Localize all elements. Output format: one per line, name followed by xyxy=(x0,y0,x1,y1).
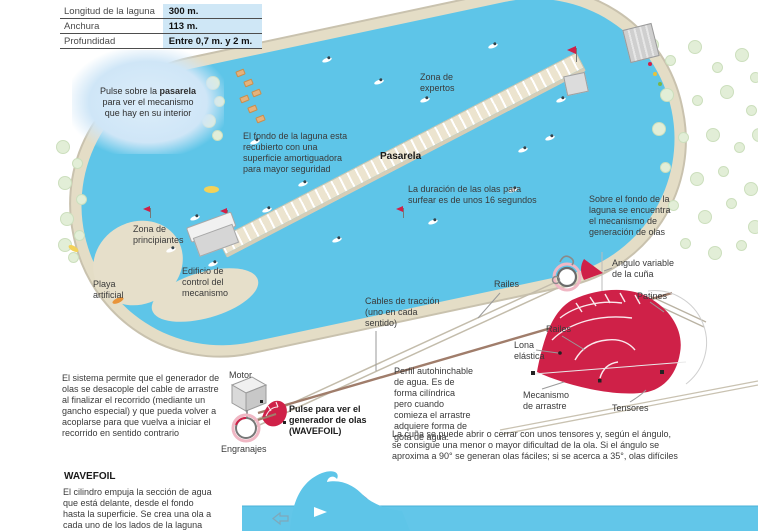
buoy-flag-icon xyxy=(150,208,151,218)
paragraph-cuna: La cuña se puede abrir o cerrar con unos… xyxy=(392,429,678,462)
surfer-icon xyxy=(298,180,309,187)
surfer-icon xyxy=(488,42,499,49)
tree-icon xyxy=(680,238,691,249)
tree-icon xyxy=(660,162,671,173)
lounger-icon xyxy=(239,95,250,104)
paragraph-sistema: El sistema permite que el generador de o… xyxy=(62,373,219,439)
tree-icon xyxy=(698,210,712,224)
tree-icon xyxy=(688,40,702,54)
flag-pole xyxy=(576,48,577,62)
tree-icon xyxy=(690,172,704,186)
row-value: 300 m. xyxy=(163,4,262,18)
row-label: Profundidad xyxy=(60,34,163,48)
tree-icon xyxy=(665,55,676,66)
label-pasarela[interactable]: Pasarela xyxy=(380,151,421,162)
bubble-text-post: para ver el mecanismo que hay en su inte… xyxy=(102,97,193,118)
label-engranajes: Engranajes xyxy=(221,444,267,455)
tree-icon xyxy=(76,194,87,205)
label-motor: Motor xyxy=(229,370,252,381)
tree-icon xyxy=(68,252,79,263)
tree-icon xyxy=(712,62,723,73)
surfer-icon xyxy=(428,218,439,225)
bubble-text-pre: Pulse sobre la xyxy=(100,86,160,96)
label-fondo-laguna: El fondo de la laguna esta recubierto co… xyxy=(243,131,347,175)
surfer-icon xyxy=(556,96,567,103)
lounger-icon xyxy=(235,69,246,78)
tree-icon xyxy=(748,220,758,234)
lounger-icon xyxy=(255,115,266,124)
surfer-icon xyxy=(420,96,431,103)
paragraph-wavefoil: El cilindro empuja la sección de agua qu… xyxy=(63,487,212,531)
tree-icon xyxy=(706,128,720,142)
tree-icon xyxy=(746,105,757,116)
tree-icon xyxy=(678,132,689,143)
tree-icon xyxy=(56,140,70,154)
surfer-icon xyxy=(190,214,201,221)
surfer-icon xyxy=(518,146,529,153)
surfer-icon xyxy=(374,78,385,85)
lounger-icon xyxy=(247,105,258,114)
wave-lagoon-infographic: Pulse sobre la pasarela para ver el meca… xyxy=(0,0,758,531)
table-row: Profundidad Entre 0,7 m. y 2 m. xyxy=(60,34,262,49)
label-railes-upper: Railes xyxy=(494,279,519,290)
label-cables-traccion: Cables de tracción (uno en cada sentido) xyxy=(365,296,440,329)
lounger-icon xyxy=(251,89,262,98)
tree-icon xyxy=(744,182,758,196)
tree-icon xyxy=(726,198,737,209)
tree-icon xyxy=(752,128,758,142)
tree-icon xyxy=(734,142,745,153)
label-duracion-olas: La duración de las olas para surfear es … xyxy=(408,184,537,206)
row-value: Entre 0,7 m. y 2 m. xyxy=(163,34,262,48)
surfer-icon xyxy=(545,134,556,141)
lounger-icon xyxy=(243,79,254,88)
tree-icon xyxy=(718,166,729,177)
surfer-icon xyxy=(166,246,177,253)
label-mecanismo-arrastre: Mecanismo de arrastre xyxy=(523,390,569,412)
lagoon-spec-table: Longitud de la laguna 300 m. Anchura 113… xyxy=(60,4,262,49)
tree-icon xyxy=(72,158,83,169)
label-tensores: Tensores xyxy=(612,403,649,414)
red-flag-icon xyxy=(567,46,576,54)
tree-icon xyxy=(750,72,758,83)
row-label: Anchura xyxy=(60,19,163,33)
tree-icon xyxy=(692,95,703,106)
label-patines: Patines xyxy=(637,291,667,302)
tree-icon xyxy=(660,88,674,102)
label-lona-elastica: Lona elástica xyxy=(514,340,545,362)
row-value: 113 m. xyxy=(163,19,262,33)
surfer-icon xyxy=(322,56,333,63)
tree-icon xyxy=(60,212,74,226)
label-angulo-variable: Angulo variable de la cuña xyxy=(612,258,674,280)
label-playa-artificial: Playa artificial xyxy=(93,279,124,301)
tree-icon xyxy=(58,176,72,190)
row-label: Longitud de la laguna xyxy=(60,4,163,18)
tree-icon xyxy=(708,246,722,260)
tree-icon xyxy=(736,240,747,251)
pasarela-tooltip-bubble: Pulse sobre la pasarela para ver el meca… xyxy=(72,50,224,154)
label-zona-principiantes: Zona de principiantes xyxy=(133,224,184,246)
bubble-text: Pulse sobre la pasarela para ver el meca… xyxy=(96,86,200,119)
tree-icon xyxy=(720,85,734,99)
label-sobre-fondo: Sobre el fondo de la laguna se encuentra… xyxy=(589,194,671,238)
kite-icon xyxy=(648,62,652,66)
table-row: Longitud de la laguna 300 m. xyxy=(60,4,262,19)
buoy-flag-icon xyxy=(403,208,404,218)
bubble-text-bold: pasarela xyxy=(160,86,197,96)
tree-icon xyxy=(735,48,749,62)
tree-icon xyxy=(652,122,666,136)
label-edificio-control: Edificio de control del mecanismo xyxy=(182,266,228,299)
label-railes-lower: Railes xyxy=(546,324,571,335)
float-icon xyxy=(204,186,219,193)
surfer-icon xyxy=(332,236,343,243)
label-pulse-generador[interactable]: Pulse para ver el generador de olas (WAV… xyxy=(289,404,367,437)
kite-icon xyxy=(658,82,662,86)
table-row: Anchura 113 m. xyxy=(60,19,262,34)
kite-icon xyxy=(653,72,657,76)
label-zona-expertos: Zona de expertos xyxy=(420,72,455,94)
wavefoil-title: WAVEFOIL xyxy=(64,471,115,482)
tree-icon xyxy=(74,230,85,241)
